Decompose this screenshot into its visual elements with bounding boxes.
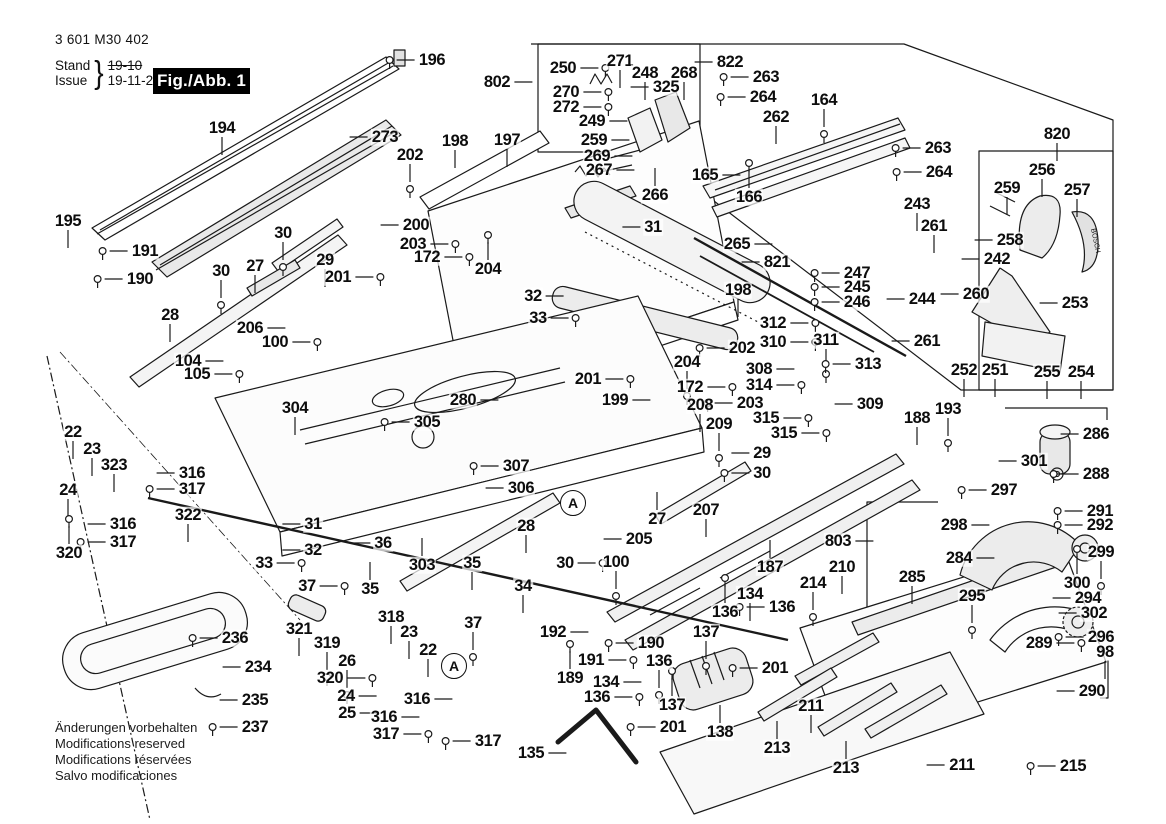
callout-257: 257 <box>1063 182 1091 199</box>
callout-35: 35 <box>360 581 380 598</box>
callout-299: 299 <box>1087 544 1115 561</box>
callout-272: 272 <box>552 99 580 116</box>
callout-317: 317 <box>178 481 206 498</box>
callout-317: 317 <box>474 733 502 750</box>
hardware-glyph-317 <box>442 738 449 750</box>
callout-30: 30 <box>211 263 231 280</box>
callout-264: 264 <box>749 89 777 106</box>
callout-192: 192 <box>539 624 567 641</box>
callout-280: 280 <box>449 392 477 409</box>
callout-201: 201 <box>761 660 789 677</box>
callout-196: 196 <box>418 52 446 69</box>
rail-273-drawing <box>152 120 401 277</box>
callout-303: 303 <box>408 557 436 574</box>
hardware-glyph-33 <box>298 560 305 572</box>
callout-234: 234 <box>244 659 272 676</box>
callout-137: 137 <box>692 624 720 641</box>
parts-diagram-page: BOSCH 3 601 M30 402 Sta <box>0 0 1166 824</box>
callout-191: 191 <box>131 243 159 260</box>
hardware-glyph-291 <box>1054 508 1061 520</box>
detail-marker-A: A <box>441 653 467 679</box>
hardware-glyph-317 <box>425 731 432 743</box>
callout-315: 315 <box>770 425 798 442</box>
callout-215: 215 <box>1059 758 1087 775</box>
callout-27: 27 <box>647 511 667 528</box>
callout-36: 36 <box>373 535 393 552</box>
callout-323: 323 <box>100 457 128 474</box>
callout-284: 284 <box>945 550 973 567</box>
callout-261: 261 <box>913 333 941 350</box>
callout-138: 138 <box>706 724 734 741</box>
callout-290: 290 <box>1078 683 1106 700</box>
callout-306: 306 <box>507 480 535 497</box>
callout-22: 22 <box>63 424 83 441</box>
callout-236: 236 <box>221 630 249 647</box>
hardware-glyph-191 <box>99 248 106 260</box>
callout-100: 100 <box>602 554 630 571</box>
callout-25: 25 <box>337 705 357 722</box>
callout-195: 195 <box>54 213 82 230</box>
callout-313: 313 <box>854 356 882 373</box>
hardware-glyph-136 <box>636 694 643 706</box>
callout-28: 28 <box>160 307 180 324</box>
callout-317: 317 <box>109 534 137 551</box>
callout-32: 32 <box>523 288 543 305</box>
callout-201: 201 <box>574 371 602 388</box>
callout-193: 193 <box>934 401 962 418</box>
callout-190: 190 <box>126 271 154 288</box>
callout-253: 253 <box>1061 295 1089 312</box>
callout-255: 255 <box>1033 364 1061 381</box>
callout-27: 27 <box>245 258 265 275</box>
callout-187: 187 <box>756 559 784 576</box>
callout-263: 263 <box>924 140 952 157</box>
callout-24: 24 <box>58 482 78 499</box>
callout-320: 320 <box>55 545 83 562</box>
callout-309: 309 <box>856 396 884 413</box>
callout-264: 264 <box>925 164 953 181</box>
footer-line-es: Salvo modificaciones <box>55 768 197 784</box>
callout-23: 23 <box>82 441 102 458</box>
callout-251: 251 <box>981 362 1009 379</box>
callout-30: 30 <box>555 555 575 572</box>
hardware-glyph-201 <box>377 274 384 286</box>
hardware-glyph-189 <box>567 641 574 653</box>
callout-266: 266 <box>641 187 669 204</box>
callout-243: 243 <box>903 196 931 213</box>
callout-803: 803 <box>824 533 852 550</box>
hardware-glyph-320 <box>369 675 376 687</box>
callout-134: 134 <box>736 586 764 603</box>
hardware-glyph-202 <box>407 186 414 198</box>
callout-297: 297 <box>990 482 1018 499</box>
callout-260: 260 <box>962 286 990 303</box>
callout-305: 305 <box>413 414 441 431</box>
callout-35: 35 <box>462 555 482 572</box>
hardware-glyph-100 <box>314 339 321 351</box>
callout-250: 250 <box>549 60 577 77</box>
callout-259: 259 <box>993 180 1021 197</box>
callout-209: 209 <box>705 416 733 433</box>
bracket-286 <box>1005 408 1107 420</box>
hardware-glyph-297 <box>958 487 965 499</box>
footer-line-fr: Modifications réservées <box>55 752 197 768</box>
callout-822: 822 <box>716 54 744 71</box>
callout-316: 316 <box>370 709 398 726</box>
callout-34: 34 <box>513 578 533 595</box>
callout-246: 246 <box>843 294 871 311</box>
callout-37: 37 <box>297 578 317 595</box>
hardware-glyph-37 <box>470 654 477 666</box>
callout-98: 98 <box>1095 644 1115 661</box>
callout-30: 30 <box>273 225 293 242</box>
callout-26: 26 <box>337 653 357 670</box>
callout-213: 213 <box>763 740 791 757</box>
callout-30: 30 <box>752 465 772 482</box>
brace-glyph: } <box>94 55 103 92</box>
callout-136: 136 <box>583 689 611 706</box>
callout-265: 265 <box>723 236 751 253</box>
callout-172: 172 <box>413 249 441 266</box>
callout-267: 267 <box>585 162 613 179</box>
callout-256: 256 <box>1028 162 1056 179</box>
callout-261: 261 <box>920 218 948 235</box>
callout-28: 28 <box>516 518 536 535</box>
hardware-glyph-190 <box>94 276 101 288</box>
hardware-glyph-315 <box>823 430 830 442</box>
callout-202: 202 <box>728 340 756 357</box>
wrench-135-drawing <box>558 710 636 762</box>
callout-311: 311 <box>812 332 839 349</box>
hardware-glyph-193 <box>945 440 952 452</box>
callout-135: 135 <box>517 745 545 762</box>
hardware-glyph-164 <box>821 131 828 143</box>
hardware-glyph-105 <box>236 371 243 383</box>
hardware-glyph-264 <box>717 94 724 106</box>
hardware-glyph-215 <box>1027 763 1034 775</box>
callout-262: 262 <box>762 109 790 126</box>
hardware-glyph-246 <box>811 299 818 311</box>
detail-820-contents-drawing: BOSCH <box>972 192 1101 372</box>
callout-242: 242 <box>983 251 1011 268</box>
callout-317: 317 <box>372 726 400 743</box>
callout-322: 322 <box>174 507 202 524</box>
callout-172: 172 <box>676 379 704 396</box>
callout-211: 211 <box>948 757 975 774</box>
footer-line-en: Modifications reserved <box>55 736 197 752</box>
hardware-glyph-264 <box>893 169 900 181</box>
callout-211: 211 <box>797 698 824 715</box>
callout-32: 32 <box>303 542 323 559</box>
callout-202: 202 <box>396 147 424 164</box>
hardware-glyph-245 <box>811 284 818 296</box>
callout-235: 235 <box>241 692 269 709</box>
callout-205: 205 <box>625 531 653 548</box>
callout-249: 249 <box>578 113 606 130</box>
callout-210: 210 <box>828 559 856 576</box>
callout-258: 258 <box>996 232 1024 249</box>
hardware-glyph-288 <box>1050 471 1057 483</box>
callout-189: 189 <box>556 670 584 687</box>
hardware-glyph-317 <box>146 486 153 498</box>
callout-288: 288 <box>1082 466 1110 483</box>
callout-198: 198 <box>441 133 469 150</box>
callout-285: 285 <box>898 569 926 586</box>
stand-label: Stand <box>55 58 90 73</box>
callout-200: 200 <box>402 217 430 234</box>
callout-802: 802 <box>483 74 511 91</box>
callout-214: 214 <box>799 575 827 592</box>
hardware-glyph-190 <box>605 640 612 652</box>
callout-207: 207 <box>692 502 720 519</box>
callout-298: 298 <box>940 517 968 534</box>
callout-316: 316 <box>403 691 431 708</box>
footer-notices: Änderungen vorbehalten Modifications res… <box>55 720 197 784</box>
callout-31: 31 <box>643 219 663 236</box>
callout-29: 29 <box>315 252 335 269</box>
callout-31: 31 <box>303 516 323 533</box>
callout-198: 198 <box>724 282 752 299</box>
callout-204: 204 <box>474 261 502 278</box>
callout-194: 194 <box>208 120 236 137</box>
callout-273: 273 <box>371 129 399 146</box>
hardware-glyph-172 <box>729 384 736 396</box>
callout-320: 320 <box>316 670 344 687</box>
callout-289: 289 <box>1025 635 1053 652</box>
hardware-glyph-30 <box>218 302 225 314</box>
callout-310: 310 <box>759 334 787 351</box>
callout-188: 188 <box>903 410 931 427</box>
callout-164: 164 <box>810 92 838 109</box>
callout-24: 24 <box>336 688 356 705</box>
callout-201: 201 <box>659 719 687 736</box>
hardware-glyph-209 <box>716 455 723 467</box>
hardware-glyph-315 <box>805 415 812 427</box>
callout-165: 165 <box>691 167 719 184</box>
callout-199: 199 <box>601 392 629 409</box>
footer-line-de: Änderungen vorbehalten <box>55 720 197 736</box>
callout-204: 204 <box>673 354 701 371</box>
hardware-glyph-263 <box>892 145 899 157</box>
end-cap-196-drawing <box>394 50 405 66</box>
callout-263: 263 <box>752 69 780 86</box>
callout-197: 197 <box>493 132 521 149</box>
hardware-glyph-270 <box>605 89 612 101</box>
hardware-glyph-37 <box>341 583 348 595</box>
callout-302: 302 <box>1080 605 1108 622</box>
callout-22: 22 <box>418 642 438 659</box>
callout-136: 136 <box>711 604 739 621</box>
detail-marker-A: A <box>560 490 586 516</box>
hardware-glyph-314 <box>798 382 805 394</box>
callout-314: 314 <box>745 377 773 394</box>
callout-100: 100 <box>261 334 289 351</box>
callout-201: 201 <box>324 269 352 286</box>
callout-23: 23 <box>399 624 419 641</box>
callout-325: 325 <box>652 79 680 96</box>
callout-321: 321 <box>285 621 313 638</box>
hardware-glyph-201 <box>627 724 634 736</box>
callout-33: 33 <box>528 310 548 327</box>
hardware-glyph-237 <box>209 724 216 736</box>
hardware-glyph-263 <box>720 74 727 86</box>
title-block: 3 601 M30 402 Stand Issue } 19-10 19-11-… <box>55 32 161 89</box>
hardware-glyph-320 <box>66 516 73 528</box>
callout-237: 237 <box>241 719 269 736</box>
issue-label: Issue <box>55 73 90 88</box>
callout-316: 316 <box>109 516 137 533</box>
callout-254: 254 <box>1067 364 1095 381</box>
callout-244: 244 <box>908 291 936 308</box>
callout-137: 137 <box>658 697 686 714</box>
callout-821: 821 <box>763 254 791 271</box>
part-number: 3 601 M30 402 <box>55 32 161 47</box>
callout-820: 820 <box>1043 126 1071 143</box>
callout-33: 33 <box>254 555 274 572</box>
hardware-glyph-191 <box>630 657 637 669</box>
handle-321-drawing <box>286 593 327 623</box>
callout-208: 208 <box>686 397 714 414</box>
callout-29: 29 <box>752 445 772 462</box>
callout-319: 319 <box>313 635 341 652</box>
callout-252: 252 <box>950 362 978 379</box>
callout-136: 136 <box>645 653 673 670</box>
callout-213: 213 <box>832 760 860 777</box>
callout-136: 136 <box>768 599 796 616</box>
callout-105: 105 <box>183 366 211 383</box>
callout-286: 286 <box>1082 426 1110 443</box>
callout-292: 292 <box>1086 517 1114 534</box>
bracket-235-drawing <box>195 688 221 697</box>
callout-295: 295 <box>958 588 986 605</box>
callout-301: 301 <box>1020 453 1048 470</box>
callout-166: 166 <box>735 189 763 206</box>
callout-307: 307 <box>502 458 530 475</box>
callout-312: 312 <box>759 315 787 332</box>
callout-37: 37 <box>463 615 483 632</box>
callout-190: 190 <box>637 635 665 652</box>
callout-304: 304 <box>281 400 309 417</box>
callout-191: 191 <box>577 652 605 669</box>
figure-label-box: Fig./Abb. 1 <box>153 68 250 94</box>
